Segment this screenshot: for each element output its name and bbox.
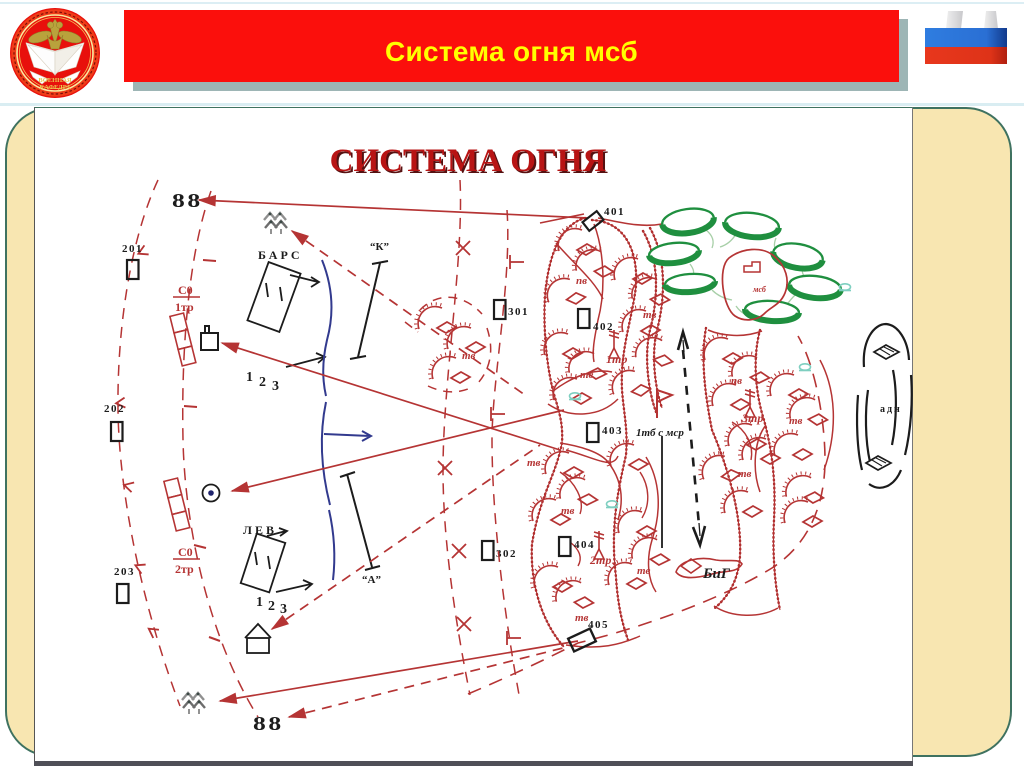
svg-text:2: 2 [259, 375, 266, 390]
svg-text:403: 403 [602, 425, 623, 437]
svg-text:1тр: 1тр [175, 300, 194, 314]
svg-text:БиГ: БиГ [702, 566, 731, 582]
svg-text:3: 3 [272, 379, 279, 394]
svg-text:1: 1 [246, 370, 253, 385]
svg-text:БАРС: БАРС [258, 248, 303, 262]
svg-text:3: 3 [280, 602, 287, 617]
svg-text:1тб с мср: 1тб с мср [636, 427, 684, 439]
svg-text:3тр: 3тр [741, 411, 763, 425]
svg-text:С0: С0 [178, 283, 193, 297]
svg-text:2: 2 [268, 599, 275, 614]
svg-text:404: 404 [574, 539, 595, 551]
svg-text:ЛЕВ: ЛЕВ [243, 523, 277, 537]
svg-text:1тр: 1тр [606, 352, 627, 366]
svg-text:СИСТЕМА ОГНЯ: СИСТЕМА ОГНЯ [330, 143, 607, 179]
svg-text:“К”: “К” [370, 241, 389, 253]
svg-text:2тр: 2тр [589, 553, 611, 567]
svg-text:1: 1 [256, 595, 263, 610]
svg-text:адн: адн [880, 404, 902, 415]
svg-text:тв: тв [580, 369, 594, 381]
svg-text:тв: тв [575, 612, 589, 624]
svg-text:тв: тв [637, 565, 651, 577]
svg-text:201: 201 [122, 243, 143, 255]
svg-text:2тр: 2тр [175, 562, 194, 576]
svg-text:тв: тв [462, 350, 476, 362]
svg-text:202: 202 [104, 403, 125, 415]
svg-text:301: 301 [508, 306, 529, 318]
svg-text:пв: пв [731, 375, 742, 387]
svg-text:С0: С0 [178, 545, 193, 559]
svg-text:мсб: мсб [752, 285, 767, 294]
svg-text:тв: тв [789, 415, 803, 427]
svg-text:“А”: “А” [362, 574, 381, 586]
svg-text:тв: тв [527, 457, 541, 469]
svg-text:203: 203 [114, 566, 135, 578]
svg-text:тв: тв [738, 468, 752, 480]
svg-text:тв: тв [643, 309, 657, 321]
svg-text:401: 401 [604, 206, 625, 218]
svg-text:пв: пв [576, 275, 587, 287]
svg-text:тв: тв [561, 505, 575, 517]
